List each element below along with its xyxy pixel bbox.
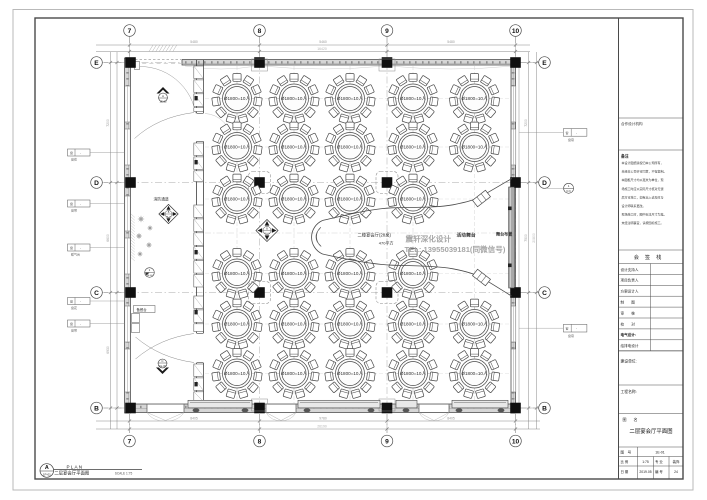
svg-text:方案设计人: 方案设计人 (621, 289, 639, 294)
svg-text:窗花: 窗花 (71, 157, 77, 162)
svg-text:7: 7 (128, 28, 132, 35)
svg-text:-: - (576, 131, 577, 135)
svg-text:图名: 图名 (623, 416, 645, 422)
svg-text:二层宴会厅平面图: 二层宴会厅平面图 (629, 427, 672, 435)
svg-text:建设单位:: 建设单位: (621, 359, 637, 364)
svg-text:470平方: 470平方 (379, 240, 394, 246)
svg-text:D-6: D-6 (567, 189, 572, 193)
svg-text:1P-01: 1P-01 (43, 472, 51, 476)
svg-text:E: E (542, 60, 547, 67)
svg-text:D: D (94, 180, 99, 187)
svg-text:场施工时应以实际尺寸核对无误: 场施工时应以实际尺寸核对无误 (622, 186, 664, 191)
svg-text:-: - (80, 151, 81, 155)
svg-text:24: 24 (674, 470, 678, 474)
svg-text:窗帘: 窗帘 (568, 333, 574, 338)
svg-text:设计支持人: 设计支持人 (621, 267, 639, 272)
svg-text:窗花: 窗花 (71, 305, 77, 310)
svg-text:E: E (94, 60, 99, 67)
svg-text:5480: 5480 (190, 40, 198, 44)
svg-text:窗: 窗 (566, 130, 569, 135)
svg-text:5460: 5460 (319, 40, 327, 44)
svg-text:1E-06: 1E-06 (147, 275, 154, 277)
svg-text:6930: 6930 (106, 346, 110, 354)
svg-text:窗: 窗 (70, 201, 73, 206)
svg-text:6600: 6600 (106, 234, 110, 242)
svg-text:窗帘: 窗帘 (71, 208, 77, 213)
svg-text:二楼宴会厅(28桌): 二楼宴会厅(28桌) (358, 231, 392, 238)
svg-text:1E-01: 1E-01 (655, 450, 665, 454)
svg-text:A: A (45, 465, 49, 471)
svg-text:窗: 窗 (70, 299, 73, 304)
svg-text:窗: 窗 (70, 150, 73, 155)
svg-text:10: 10 (512, 438, 520, 445)
svg-text:窗帘: 窗帘 (568, 137, 574, 142)
svg-text:10: 10 (512, 28, 520, 35)
svg-text:1E-06: 1E-06 (264, 233, 271, 235)
svg-text:PLAN: PLAN (67, 464, 84, 469)
svg-text:合作设计机构: 合作设计机构 (621, 121, 643, 126)
svg-text:现场施工时，图中标注尺寸为准。: 现场施工时，图中标注尺寸为准。 (622, 212, 667, 217)
svg-text:B: B (542, 405, 547, 412)
svg-text:未经注明事宜，请按国标施工。: 未经注明事宜，请按国标施工。 (622, 220, 664, 225)
svg-text:-: - (80, 202, 81, 206)
svg-text:8405: 8405 (447, 416, 455, 420)
svg-text:专 业: 专 业 (655, 459, 663, 464)
svg-text:SCALE 1:75: SCALE 1:75 (115, 471, 133, 475)
svg-text:8405: 8405 (190, 416, 198, 420)
svg-text:装饰: 装饰 (673, 459, 680, 464)
svg-text:D: D (542, 180, 547, 187)
svg-text:C: C (94, 290, 99, 297)
svg-text:7500: 7500 (524, 234, 528, 242)
svg-text:-: - (80, 300, 81, 304)
svg-text:本设计图纸版权归本公司所有，: 本设计图纸版权归本公司所有， (622, 160, 664, 165)
svg-text:本图框尺寸均以毫米为单位，现: 本图框尺寸均以毫米为单位，现 (622, 177, 664, 182)
svg-text:备餐台: 备餐台 (137, 307, 148, 312)
svg-text:震轩深化设计: 震轩深化设计 (405, 233, 452, 243)
svg-text:-: - (80, 246, 81, 250)
svg-text:1E-05: 1E-05 (160, 99, 167, 103)
svg-text:5480: 5480 (447, 40, 455, 44)
svg-text:舞台布置: 舞台布置 (496, 231, 512, 237)
svg-text:暖气台: 暖气台 (71, 252, 80, 257)
svg-text:9: 9 (385, 28, 389, 35)
svg-text:制 图: 制 图 (621, 300, 636, 305)
svg-text:窗: 窗 (566, 326, 569, 331)
svg-text:备注: 备注 (620, 154, 629, 159)
svg-text:日 期: 日 期 (621, 469, 629, 474)
svg-text:会签栈: 会签栈 (634, 253, 668, 261)
svg-text:8: 8 (258, 28, 262, 35)
svg-text:图 号: 图 号 (621, 449, 632, 454)
svg-text:26190: 26190 (317, 425, 327, 429)
svg-text:16420: 16420 (317, 47, 327, 51)
svg-text:编 号: 编 号 (655, 469, 663, 474)
svg-text:窗: 窗 (70, 321, 73, 326)
svg-text:-: - (576, 327, 577, 331)
svg-text:1E-06: 1E-06 (159, 364, 166, 368)
svg-text:1E-06: 1E-06 (166, 216, 173, 218)
svg-text:工程名称:: 工程名称: (621, 389, 637, 394)
svg-text:7200: 7200 (106, 119, 110, 127)
svg-text:电气设计:: 电气设计: (621, 332, 637, 337)
svg-text:TEL: 13955039181(同微信号): TEL: 13955039181(同微信号) (405, 244, 506, 254)
svg-text:审 核: 审 核 (621, 310, 636, 315)
svg-text:消防通道: 消防通道 (154, 196, 169, 201)
svg-text:-: - (80, 322, 81, 326)
svg-text:9: 9 (385, 438, 389, 445)
svg-text:A: A (162, 94, 164, 98)
svg-text:B: B (94, 405, 99, 412)
svg-text:8: 8 (258, 438, 262, 445)
svg-text:C: C (542, 290, 547, 297)
svg-text:窗帘: 窗帘 (71, 328, 77, 333)
svg-text:未经本公司许可同意，不得复制。: 未经本公司许可同意，不得复制。 (622, 169, 667, 174)
svg-text:窗: 窗 (70, 245, 73, 250)
svg-text:20800: 20800 (532, 233, 536, 243)
svg-text:比 例: 比 例 (621, 459, 629, 464)
svg-text:给排电设计: 给排电设计 (621, 343, 639, 348)
svg-text:校 对: 校 对 (621, 321, 636, 326)
svg-text:设计师联系更改。: 设计师联系更改。 (622, 203, 646, 208)
svg-text:9780: 9780 (319, 416, 327, 420)
svg-text:后方可施工，如有出入请及时与: 后方可施工，如有出入请及时与 (622, 194, 664, 199)
svg-text:活动舞台: 活动舞台 (457, 231, 476, 238)
svg-text:1:75: 1:75 (642, 460, 649, 464)
svg-text:7200: 7200 (524, 119, 528, 127)
svg-text:项目负责人: 项目负责人 (621, 278, 639, 283)
svg-text:2019.05: 2019.05 (639, 470, 651, 474)
svg-text:二层宴会厅平面图: 二层宴会厅平面图 (54, 470, 90, 477)
svg-text:7: 7 (128, 438, 132, 445)
